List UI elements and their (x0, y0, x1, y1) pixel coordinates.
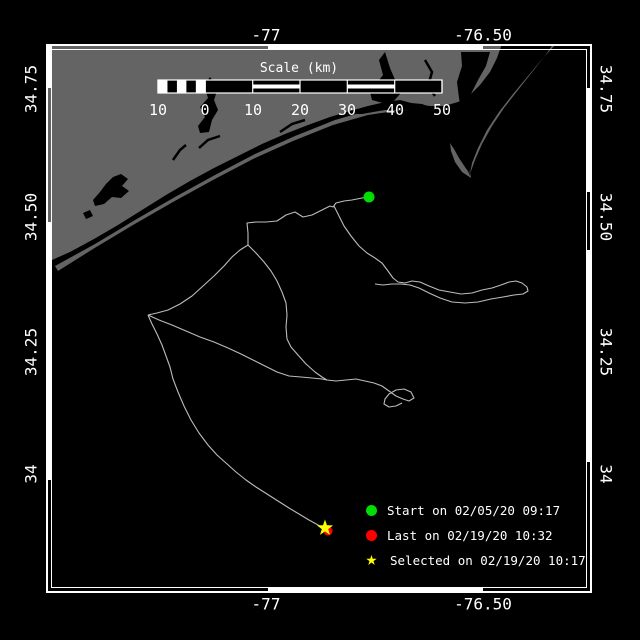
legend-row-start: Start on 02/05/20 09:17 (366, 498, 586, 523)
legend-row-selected: ★ Selected on 02/19/20 10:17 (366, 548, 586, 573)
axis-label-lat-left-34: 34 (22, 464, 41, 483)
start-marker[interactable] (364, 192, 375, 203)
axis-label-lat-right-3425: 34.25 (597, 328, 616, 376)
scalebar-title: Scale (km) (260, 61, 338, 76)
legend-label-selected: Selected on 02/19/20 10:17 (390, 553, 586, 568)
land-polygon (46, 44, 502, 262)
scalebar-tick-label: 30 (338, 101, 356, 119)
frame-zebra-segment (268, 588, 483, 593)
estuary-polygon (348, 102, 470, 176)
frame-zebra-segment (46, 222, 52, 480)
start-dot-icon (366, 505, 377, 516)
trajectory-plot: -77 -76.50 -77 -76.50 34.75 34.50 34.25 … (0, 0, 640, 640)
axis-label-lon-top-7650: -76.50 (454, 26, 512, 45)
drifter-track (334, 206, 528, 303)
scalebar-subcell (196, 80, 205, 93)
last-dot-icon (366, 530, 377, 541)
drifter-track (148, 315, 414, 407)
selected-star-icon: ★ (363, 552, 380, 569)
drifter-track (148, 315, 325, 529)
scalebar-tick-label: 10 (244, 101, 262, 119)
drifter-track (248, 245, 327, 380)
axis-label-lat-right-34: 34 (597, 464, 616, 483)
drifter-track (247, 197, 369, 245)
axis-label-lat-left-3425: 34.25 (22, 328, 41, 376)
scalebar-tick-label: 50 (433, 101, 451, 119)
frame-zebra-segment (46, 44, 52, 88)
axis-label-lat-right-3475: 34.75 (597, 65, 616, 113)
axis-label-lon-top-77: -77 (252, 26, 281, 45)
scalebar-tick-label: 10 (149, 101, 167, 119)
drifter-track (148, 245, 248, 315)
scalebar-stripe (347, 85, 394, 89)
axis-label-lon-bottom-7650: -76.50 (454, 595, 512, 614)
axis-label-lat-left-3475: 34.75 (22, 65, 41, 113)
estuary-polygon (457, 52, 490, 113)
axis-label-lat-left-3450: 34.50 (22, 193, 41, 241)
legend-row-last: Last on 02/19/20 10:32 (366, 523, 586, 548)
frame-zebra-segment (587, 250, 592, 462)
scalebar-stripe (253, 85, 300, 89)
legend: Start on 02/05/20 09:17 Last on 02/19/20… (366, 498, 586, 573)
legend-label-last: Last on 02/19/20 10:32 (387, 528, 553, 543)
frame-zebra-segment (587, 88, 592, 192)
scalebar-tick-label: 0 (200, 101, 209, 119)
scalebar-tick-label: 20 (291, 101, 309, 119)
axis-label-lat-right-3450: 34.50 (597, 193, 616, 241)
axis-label-lon-bottom-77: -77 (252, 595, 281, 614)
scalebar-subcell (177, 80, 186, 93)
legend-label-start: Start on 02/05/20 09:17 (387, 503, 560, 518)
scalebar-tick-label: 40 (386, 101, 404, 119)
scalebar-subcell (158, 80, 167, 93)
frame-zebra-segment (268, 44, 483, 50)
